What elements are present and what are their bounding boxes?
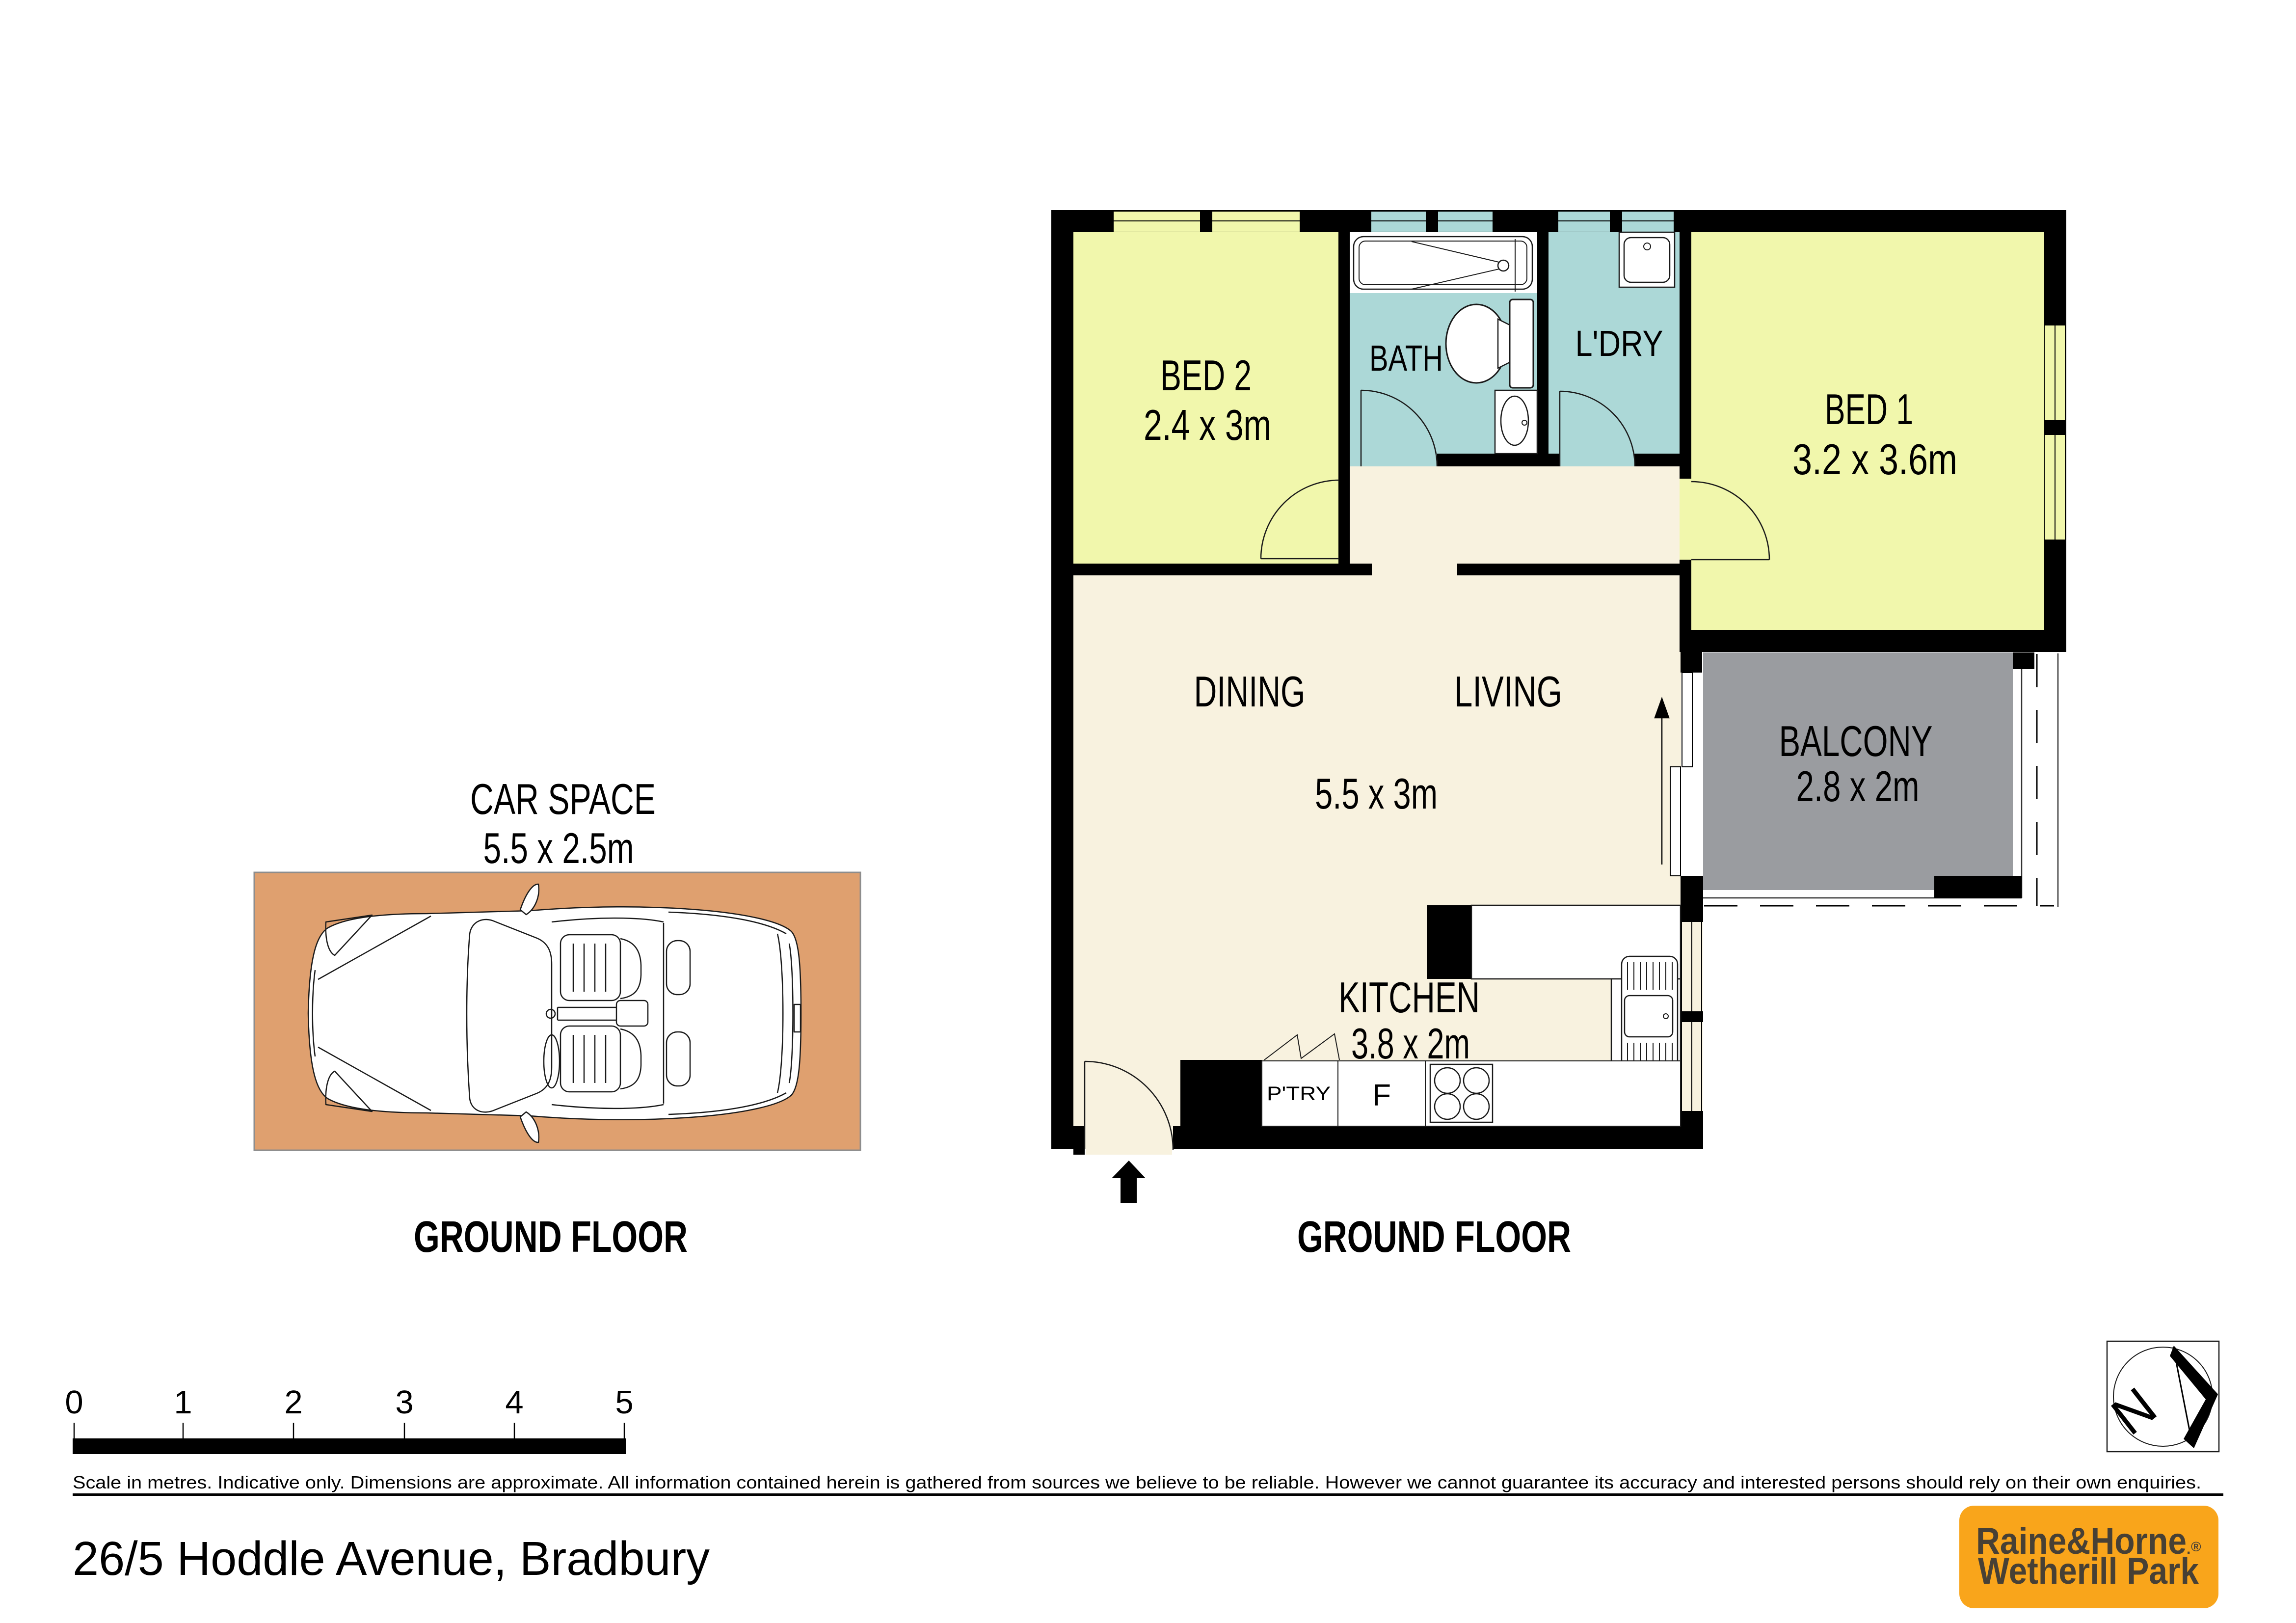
svg-text:1: 1 (174, 1384, 192, 1421)
svg-text:DINING: DINING (1194, 667, 1306, 716)
svg-text:BED 2: BED 2 (1160, 351, 1252, 400)
svg-text:3: 3 (395, 1384, 413, 1421)
svg-text:KITCHEN: KITCHEN (1338, 973, 1480, 1022)
svg-text:BALCONY: BALCONY (1779, 717, 1933, 765)
svg-text:GROUND FLOOR: GROUND FLOOR (414, 1213, 688, 1262)
svg-text:L'DRY: L'DRY (1575, 323, 1663, 364)
svg-text:3.8 x 2m: 3.8 x 2m (1351, 1019, 1470, 1068)
svg-text:Wetherill Park: Wetherill Park (1978, 1550, 2199, 1592)
svg-text:CAR SPACE: CAR SPACE (470, 775, 656, 823)
svg-text:F: F (1372, 1079, 1391, 1112)
svg-text:2: 2 (284, 1384, 302, 1421)
svg-text:5.5 x 3m: 5.5 x 3m (1315, 769, 1438, 818)
svg-text:GROUND FLOOR: GROUND FLOOR (1297, 1213, 1571, 1262)
svg-text:BED 1: BED 1 (1825, 385, 1913, 433)
svg-text:5: 5 (615, 1384, 633, 1421)
svg-text:3.2 x 3.6m: 3.2 x 3.6m (1792, 435, 1957, 484)
svg-text:Scale in metres. Indicative on: Scale in metres. Indicative only. Dimens… (73, 1472, 2201, 1492)
svg-text:0: 0 (65, 1384, 83, 1421)
svg-text:P'TRY: P'TRY (1267, 1083, 1331, 1105)
svg-text:2.4 x 3m: 2.4 x 3m (1144, 401, 1271, 449)
svg-text:LIVING: LIVING (1454, 667, 1562, 716)
svg-text:26/5 Hoddle Avenue, Bradbury: 26/5 Hoddle Avenue, Bradbury (73, 1532, 710, 1585)
svg-text:4: 4 (505, 1384, 523, 1421)
svg-text:BATH: BATH (1369, 338, 1443, 379)
svg-text:5.5 x 2.5m: 5.5 x 2.5m (483, 824, 634, 872)
svg-text:2.8 x 2m: 2.8 x 2m (1796, 762, 1920, 811)
